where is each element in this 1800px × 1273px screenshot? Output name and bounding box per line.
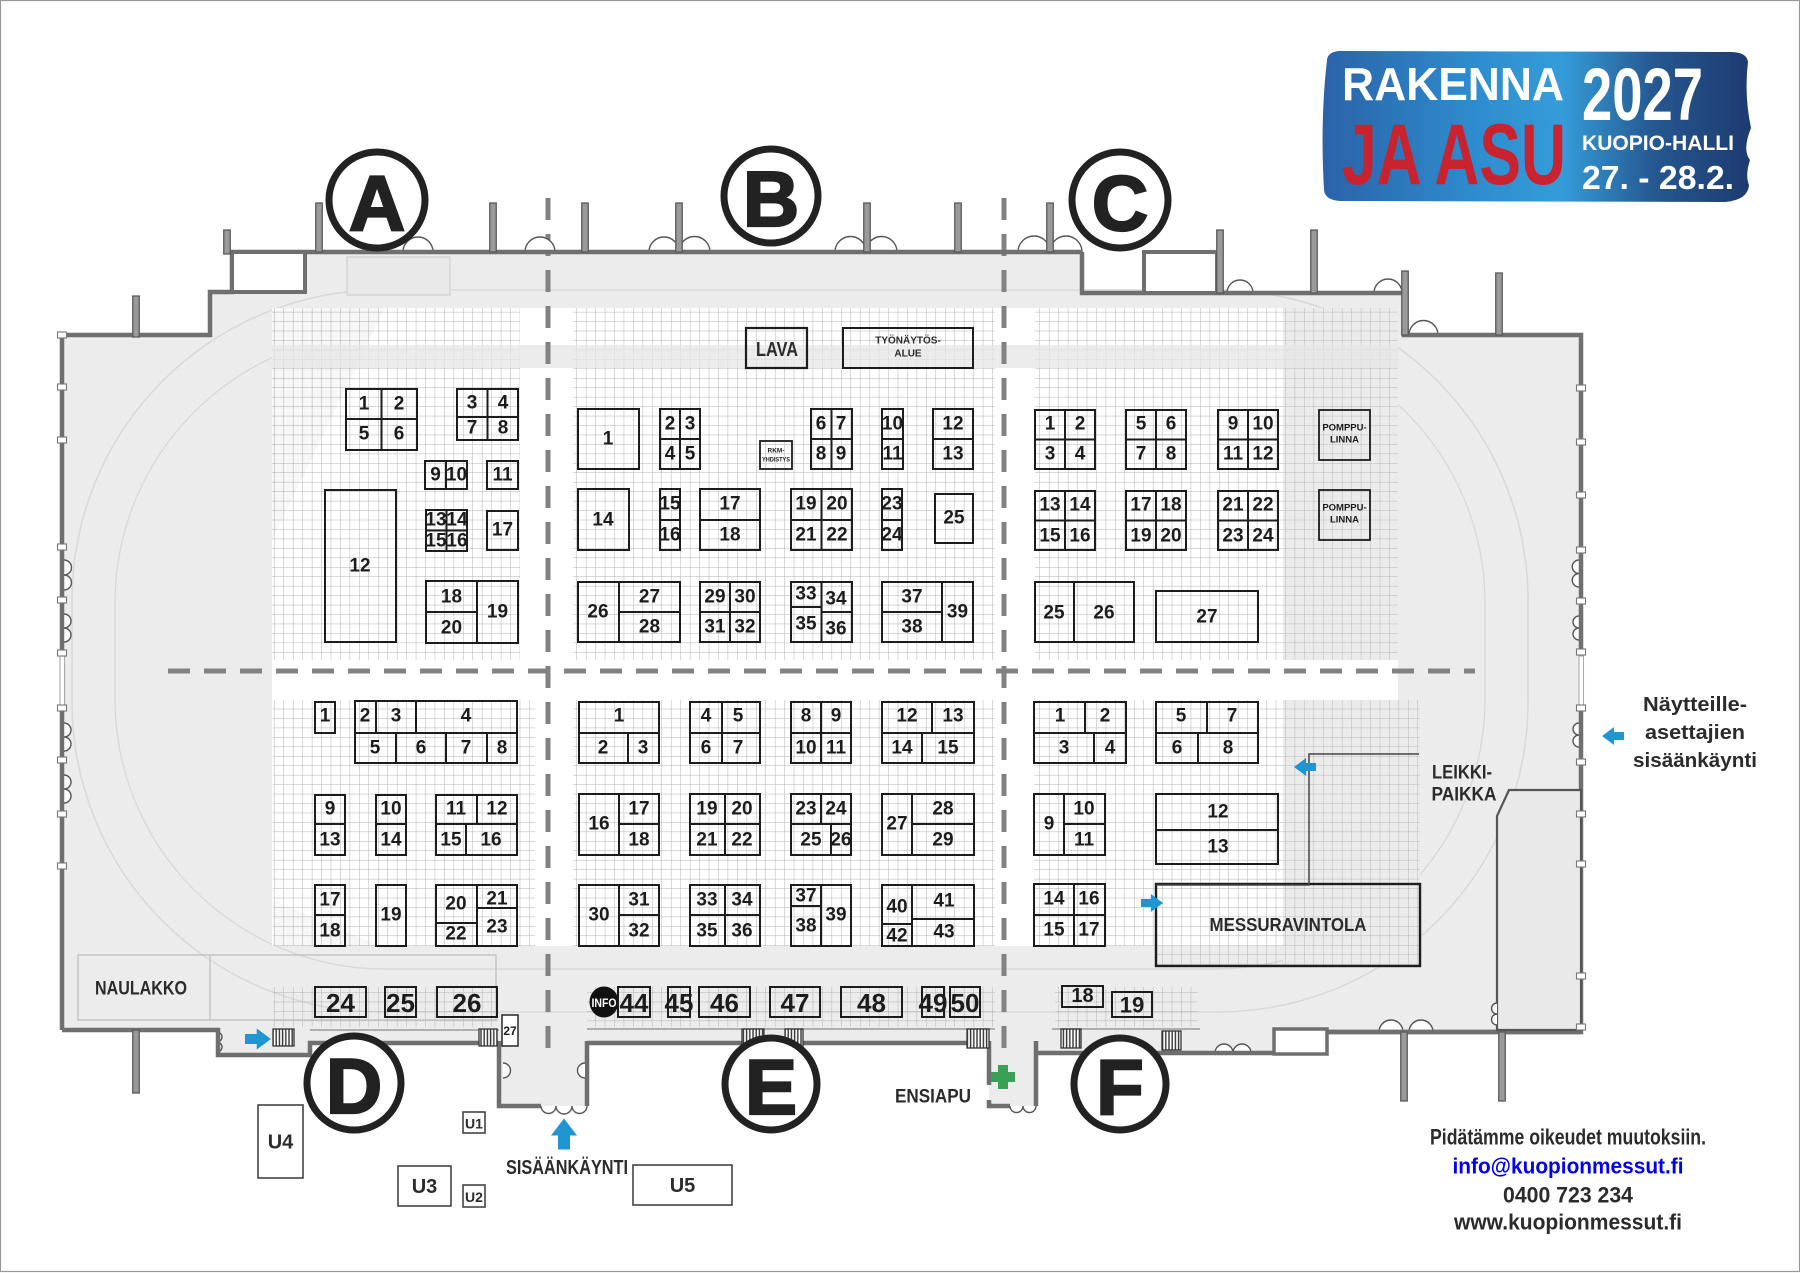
- svg-text:24: 24: [1252, 526, 1274, 547]
- svg-text:LINNA: LINNA: [1330, 435, 1359, 446]
- svg-text:19: 19: [1120, 993, 1144, 1018]
- svg-text:7: 7: [1136, 444, 1147, 465]
- svg-text:17: 17: [719, 494, 740, 515]
- svg-text:6: 6: [1166, 414, 1177, 435]
- svg-text:42: 42: [886, 926, 907, 947]
- svg-text:A: A: [349, 159, 405, 247]
- svg-text:U4: U4: [268, 1132, 294, 1154]
- svg-text:8: 8: [1166, 444, 1177, 465]
- svg-text:27. - 28.2.: 27. - 28.2.: [1582, 159, 1734, 196]
- svg-text:B: B: [743, 155, 799, 243]
- svg-text:19: 19: [696, 799, 717, 820]
- svg-text:U1: U1: [465, 1116, 483, 1132]
- svg-text:9: 9: [325, 799, 336, 820]
- svg-text:30: 30: [588, 905, 609, 926]
- svg-text:7: 7: [1227, 706, 1238, 727]
- svg-text:33: 33: [795, 584, 816, 605]
- svg-text:LEIKKI-: LEIKKI-: [1432, 763, 1492, 784]
- svg-text:4: 4: [1105, 738, 1116, 759]
- svg-text:25: 25: [1043, 603, 1065, 624]
- svg-text:10: 10: [882, 414, 903, 435]
- svg-text:15: 15: [1039, 526, 1061, 547]
- svg-text:15: 15: [937, 738, 959, 759]
- svg-text:18: 18: [1160, 495, 1181, 516]
- svg-text:5: 5: [1176, 706, 1187, 727]
- svg-text:11: 11: [826, 738, 847, 759]
- svg-text:3: 3: [1045, 444, 1056, 465]
- svg-text:F: F: [1096, 1043, 1144, 1131]
- svg-text:POMPPU-: POMPPU-: [1322, 423, 1366, 434]
- svg-text:21: 21: [696, 830, 718, 851]
- svg-text:2: 2: [1100, 706, 1111, 727]
- svg-text:37: 37: [795, 886, 816, 907]
- svg-text:www.kuopionmessut.fi: www.kuopionmessut.fi: [1453, 1210, 1682, 1235]
- svg-text:3: 3: [467, 393, 478, 414]
- svg-text:2: 2: [665, 414, 676, 435]
- svg-text:0400 723 234: 0400 723 234: [1503, 1183, 1634, 1208]
- svg-text:45: 45: [665, 988, 694, 1018]
- svg-text:16: 16: [1078, 889, 1099, 910]
- svg-text:23: 23: [1222, 526, 1243, 547]
- svg-text:6: 6: [394, 424, 405, 445]
- svg-text:14: 14: [446, 510, 468, 531]
- svg-text:Pidätämme oikeudet muutoksiin.: Pidätämme oikeudet muutoksiin.: [1430, 1125, 1706, 1150]
- svg-text:20: 20: [441, 618, 462, 639]
- svg-text:SISÄÄNKÄYNTI: SISÄÄNKÄYNTI: [506, 1156, 628, 1179]
- svg-text:5: 5: [359, 424, 370, 445]
- svg-text:6: 6: [701, 738, 712, 759]
- svg-text:34: 34: [825, 589, 847, 610]
- svg-text:14: 14: [380, 830, 402, 851]
- svg-text:9: 9: [430, 465, 441, 486]
- svg-text:8: 8: [801, 706, 812, 727]
- svg-text:18: 18: [628, 830, 649, 851]
- svg-text:6: 6: [1172, 738, 1183, 759]
- svg-text:32: 32: [628, 921, 649, 942]
- svg-text:23: 23: [795, 799, 816, 820]
- svg-text:8: 8: [497, 738, 508, 759]
- svg-text:17: 17: [319, 890, 340, 911]
- svg-text:3: 3: [638, 738, 649, 759]
- svg-text:18: 18: [441, 587, 462, 608]
- svg-text:U2: U2: [465, 1189, 483, 1205]
- svg-text:31: 31: [628, 890, 650, 911]
- svg-text:ENSIAPU: ENSIAPU: [895, 1087, 971, 1108]
- svg-text:36: 36: [731, 921, 752, 942]
- svg-text:2: 2: [1075, 414, 1086, 435]
- svg-text:12: 12: [942, 414, 963, 435]
- svg-text:20: 20: [445, 894, 466, 915]
- svg-text:24: 24: [881, 525, 903, 546]
- svg-text:35: 35: [696, 921, 718, 942]
- svg-text:MESSURAVINTOLA: MESSURAVINTOLA: [1210, 915, 1367, 935]
- svg-text:28: 28: [639, 617, 660, 638]
- svg-text:39: 39: [947, 602, 968, 623]
- svg-text:18: 18: [319, 921, 340, 942]
- svg-text:47: 47: [781, 988, 810, 1018]
- svg-text:20: 20: [731, 799, 752, 820]
- svg-text:INFO: INFO: [592, 996, 617, 1010]
- svg-text:16: 16: [659, 525, 680, 546]
- svg-text:4: 4: [665, 444, 676, 465]
- svg-text:27: 27: [639, 587, 660, 608]
- svg-text:4: 4: [701, 706, 712, 727]
- svg-text:13: 13: [942, 444, 963, 465]
- svg-text:11: 11: [446, 799, 467, 820]
- svg-text:13: 13: [942, 706, 963, 727]
- svg-text:32: 32: [734, 617, 755, 638]
- svg-text:9: 9: [836, 444, 847, 465]
- svg-text:25: 25: [943, 508, 965, 529]
- svg-text:7: 7: [733, 738, 744, 759]
- svg-text:NAULAKKO: NAULAKKO: [95, 979, 187, 1000]
- svg-text:14: 14: [891, 738, 913, 759]
- svg-text:5: 5: [1136, 414, 1147, 435]
- svg-text:6: 6: [416, 738, 427, 759]
- svg-text:16: 16: [446, 531, 467, 552]
- svg-text:11: 11: [882, 444, 903, 465]
- svg-text:20: 20: [826, 494, 847, 515]
- svg-text:38: 38: [901, 617, 922, 638]
- svg-text:31: 31: [704, 617, 726, 638]
- svg-text:29: 29: [704, 587, 725, 608]
- svg-text:1: 1: [603, 429, 614, 450]
- svg-text:21: 21: [795, 525, 817, 546]
- svg-text:10: 10: [795, 738, 816, 759]
- svg-text:39: 39: [825, 905, 846, 926]
- svg-text:5: 5: [733, 706, 744, 727]
- svg-text:18: 18: [1071, 985, 1093, 1007]
- svg-text:22: 22: [1252, 495, 1273, 516]
- svg-text:13: 13: [319, 830, 340, 851]
- svg-text:17: 17: [628, 799, 649, 820]
- svg-text:26: 26: [1093, 603, 1114, 624]
- svg-text:19: 19: [1130, 526, 1151, 547]
- svg-text:43: 43: [933, 922, 954, 943]
- svg-text:RAKENNA: RAKENNA: [1342, 58, 1564, 110]
- svg-text:10: 10: [446, 465, 467, 486]
- svg-text:4: 4: [498, 393, 509, 414]
- svg-text:27: 27: [886, 814, 907, 835]
- svg-text:24: 24: [326, 988, 355, 1018]
- svg-text:E: E: [745, 1043, 797, 1131]
- svg-text:28: 28: [932, 799, 953, 820]
- svg-text:38: 38: [795, 916, 816, 937]
- svg-text:15: 15: [659, 494, 681, 515]
- svg-text:4: 4: [461, 706, 472, 727]
- svg-text:4: 4: [1075, 444, 1086, 465]
- svg-text:26: 26: [830, 830, 851, 851]
- svg-text:16: 16: [1069, 526, 1090, 547]
- svg-text:17: 17: [1130, 495, 1151, 516]
- svg-text:22: 22: [826, 525, 847, 546]
- svg-text:18: 18: [719, 525, 740, 546]
- svg-text:8: 8: [816, 444, 827, 465]
- svg-text:49: 49: [919, 988, 948, 1018]
- svg-text:13: 13: [425, 510, 446, 531]
- svg-text:12: 12: [486, 799, 507, 820]
- svg-text:30: 30: [734, 587, 755, 608]
- svg-text:22: 22: [445, 924, 466, 945]
- svg-text:23: 23: [486, 917, 507, 938]
- svg-text:16: 16: [588, 814, 609, 835]
- svg-text:41: 41: [933, 891, 955, 912]
- svg-text:27: 27: [1196, 607, 1217, 628]
- svg-text:8: 8: [1223, 738, 1234, 759]
- svg-text:12: 12: [349, 556, 370, 577]
- svg-text:6: 6: [816, 414, 827, 435]
- svg-text:19: 19: [487, 602, 508, 623]
- svg-text:37: 37: [901, 587, 922, 608]
- svg-text:24: 24: [825, 799, 847, 820]
- svg-text:9: 9: [1228, 414, 1239, 435]
- svg-text:10: 10: [1252, 414, 1273, 435]
- svg-text:21: 21: [486, 889, 508, 910]
- svg-text:33: 33: [696, 890, 717, 911]
- svg-text:2: 2: [394, 394, 405, 415]
- svg-text:Näytteille-: Näytteille-: [1643, 694, 1747, 716]
- svg-text:27: 27: [503, 1024, 517, 1038]
- svg-text:15: 15: [440, 830, 462, 851]
- svg-text:34: 34: [731, 890, 753, 911]
- svg-text:17: 17: [1078, 920, 1099, 941]
- svg-text:23: 23: [881, 494, 902, 515]
- svg-text:12: 12: [1252, 444, 1273, 465]
- svg-text:21: 21: [1222, 495, 1244, 516]
- svg-text:20: 20: [1160, 526, 1181, 547]
- svg-text:44: 44: [620, 988, 649, 1018]
- svg-text:1: 1: [359, 394, 370, 415]
- svg-text:2027: 2027: [1582, 53, 1703, 136]
- svg-text:10: 10: [380, 799, 401, 820]
- svg-text:3: 3: [685, 414, 696, 435]
- svg-text:9: 9: [1044, 814, 1055, 835]
- svg-text:26: 26: [587, 602, 608, 623]
- svg-text:5: 5: [370, 738, 381, 759]
- svg-text:KUOPIO-HALLI: KUOPIO-HALLI: [1582, 132, 1734, 155]
- svg-text:5: 5: [685, 444, 696, 465]
- svg-text:26: 26: [453, 988, 482, 1018]
- svg-text:29: 29: [932, 830, 953, 851]
- svg-text:25: 25: [386, 988, 415, 1018]
- svg-text:1: 1: [320, 706, 331, 727]
- svg-text:C: C: [1092, 159, 1148, 247]
- svg-text:9: 9: [831, 706, 842, 727]
- svg-text:46: 46: [710, 988, 739, 1018]
- svg-text:RKM-: RKM-: [768, 448, 785, 455]
- svg-text:40: 40: [886, 897, 907, 918]
- svg-text:1: 1: [1045, 414, 1056, 435]
- svg-text:YHDISTYS: YHDISTYS: [762, 457, 791, 464]
- svg-text:12: 12: [896, 706, 917, 727]
- svg-text:10: 10: [1073, 799, 1094, 820]
- svg-text:sisäänkäynti: sisäänkäynti: [1633, 750, 1757, 772]
- svg-text:7: 7: [836, 414, 847, 435]
- svg-text:11: 11: [1223, 444, 1244, 465]
- svg-text:ALUE: ALUE: [894, 349, 922, 360]
- svg-text:LINNA: LINNA: [1330, 515, 1359, 526]
- svg-text:14: 14: [1043, 889, 1065, 910]
- svg-text:2: 2: [360, 706, 371, 727]
- svg-text:19: 19: [380, 905, 401, 926]
- svg-text:TYÖNÄYTÖS-: TYÖNÄYTÖS-: [875, 334, 941, 347]
- svg-text:8: 8: [498, 418, 509, 439]
- svg-text:11: 11: [492, 465, 513, 486]
- svg-text:3: 3: [391, 706, 402, 727]
- svg-text:PAIKKA: PAIKKA: [1432, 785, 1497, 806]
- svg-text:50: 50: [951, 988, 980, 1018]
- svg-text:22: 22: [731, 830, 752, 851]
- svg-text:11: 11: [1074, 830, 1095, 851]
- svg-text:D: D: [326, 1042, 382, 1130]
- svg-text:info@kuopionmessut.fi: info@kuopionmessut.fi: [1453, 1154, 1684, 1179]
- svg-text:U3: U3: [412, 1176, 438, 1198]
- svg-text:2: 2: [598, 738, 609, 759]
- svg-text:15: 15: [1043, 920, 1065, 941]
- svg-text:19: 19: [795, 494, 816, 515]
- svg-text:7: 7: [461, 738, 472, 759]
- svg-text:13: 13: [1207, 837, 1228, 858]
- svg-text:U5: U5: [670, 1175, 696, 1197]
- svg-text:35: 35: [795, 614, 817, 635]
- svg-text:1: 1: [1055, 706, 1066, 727]
- svg-text:12: 12: [1207, 802, 1228, 823]
- svg-text:7: 7: [467, 418, 478, 439]
- svg-text:17: 17: [492, 520, 513, 541]
- svg-text:16: 16: [480, 830, 501, 851]
- svg-text:36: 36: [825, 619, 846, 640]
- svg-text:3: 3: [1059, 738, 1070, 759]
- svg-text:15: 15: [425, 531, 447, 552]
- svg-text:48: 48: [857, 988, 886, 1018]
- svg-text:POMPPU-: POMPPU-: [1322, 503, 1366, 514]
- svg-text:25: 25: [800, 830, 822, 851]
- svg-text:LAVA: LAVA: [756, 339, 798, 361]
- svg-text:14: 14: [1069, 495, 1091, 516]
- svg-text:1: 1: [614, 706, 625, 727]
- svg-text:asettajien: asettajien: [1645, 722, 1745, 744]
- svg-text:JA ASU: JA ASU: [1342, 107, 1566, 203]
- svg-text:14: 14: [592, 510, 614, 531]
- svg-text:13: 13: [1039, 495, 1060, 516]
